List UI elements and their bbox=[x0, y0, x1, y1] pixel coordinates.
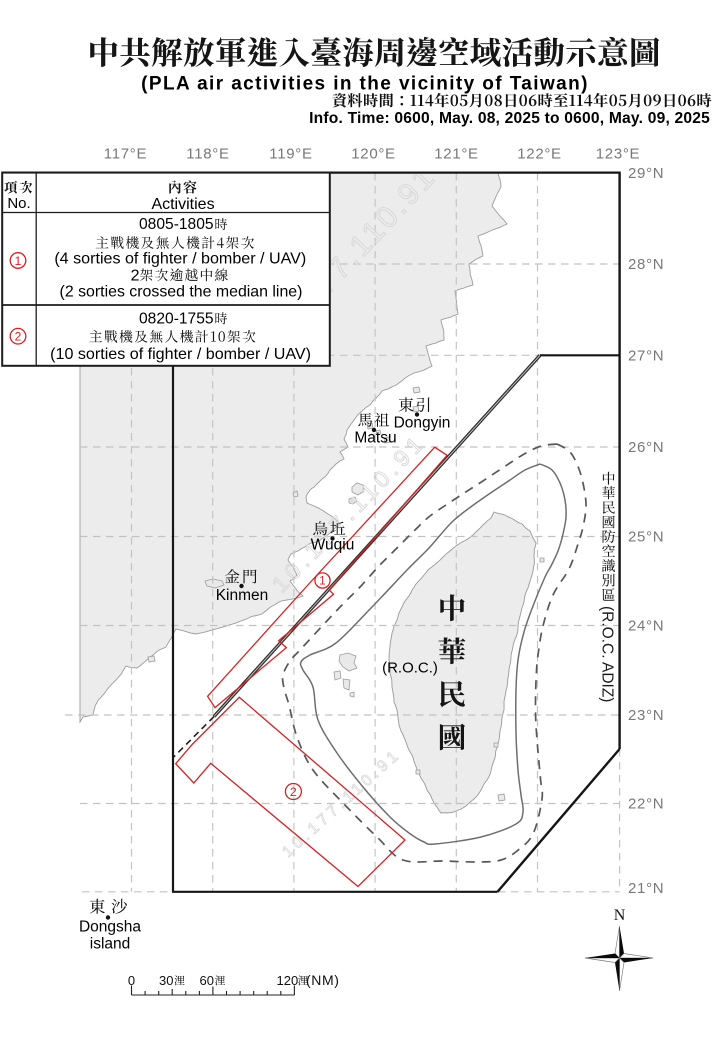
svg-text:22°N: 22°N bbox=[628, 796, 664, 813]
svg-text:(2 sorties crossed the median: (2 sorties crossed the median line) bbox=[60, 283, 303, 300]
svg-text:1: 1 bbox=[319, 576, 325, 588]
svg-text:Dongsha: Dongsha bbox=[79, 919, 141, 936]
svg-text:Dongyin: Dongyin bbox=[394, 415, 451, 432]
svg-text:25°N: 25°N bbox=[628, 529, 664, 546]
svg-text:(NM): (NM) bbox=[306, 972, 340, 988]
svg-text:120: 120 bbox=[277, 973, 299, 988]
svg-text:24°N: 24°N bbox=[628, 618, 664, 635]
svg-text:(R.O.C.): (R.O.C.) bbox=[382, 660, 438, 677]
svg-text:21°N: 21°N bbox=[628, 880, 664, 897]
svg-text:117°E: 117°E bbox=[104, 146, 147, 163]
svg-text:30: 30 bbox=[159, 973, 173, 988]
svg-text:26°N: 26°N bbox=[628, 439, 664, 456]
svg-text:2: 2 bbox=[290, 785, 297, 799]
svg-text:120°E: 120°E bbox=[351, 146, 396, 163]
svg-text:N: N bbox=[614, 907, 626, 924]
svg-text:Matsu: Matsu bbox=[354, 430, 396, 447]
svg-text:0820-1755: 0820-1755 bbox=[139, 310, 214, 327]
svg-text:(4 sorties of fighter / bomber: (4 sorties of fighter / bomber / UAV) bbox=[54, 249, 306, 267]
svg-text:27°N: 27°N bbox=[628, 347, 664, 364]
svg-text:118°E: 118°E bbox=[186, 146, 229, 163]
svg-text:1: 1 bbox=[15, 254, 22, 268]
svg-text:2: 2 bbox=[15, 330, 22, 344]
svg-text:(PLA air activities in the vic: (PLA air activities in the vicinity of T… bbox=[141, 74, 589, 95]
svg-text:121°E: 121°E bbox=[434, 146, 479, 163]
svg-text:0805-1805: 0805-1805 bbox=[139, 216, 214, 233]
svg-text:Info. Time: 0600, May. 08, 202: Info. Time: 0600, May. 08, 2025 to 0600,… bbox=[309, 110, 710, 127]
svg-text:0: 0 bbox=[128, 973, 135, 988]
svg-text:Activities: Activities bbox=[151, 196, 214, 213]
svg-text:29°N: 29°N bbox=[628, 165, 664, 182]
svg-text:123°E: 123°E bbox=[596, 146, 641, 163]
svg-text:island: island bbox=[90, 936, 131, 953]
svg-text:119°E: 119°E bbox=[269, 146, 312, 163]
svg-text:23°N: 23°N bbox=[628, 707, 664, 724]
svg-text:122°E: 122°E bbox=[517, 146, 562, 163]
svg-text:28°N: 28°N bbox=[628, 256, 664, 273]
svg-text:(10 sorties of fighter / bombe: (10 sorties of fighter / bomber / UAV) bbox=[50, 345, 311, 363]
svg-text:2: 2 bbox=[131, 267, 140, 284]
svg-text:Kinmen: Kinmen bbox=[216, 587, 269, 604]
svg-text:No.: No. bbox=[7, 195, 30, 212]
svg-text:(R.O.C. ADIZ): (R.O.C. ADIZ) bbox=[599, 606, 616, 702]
svg-text:60: 60 bbox=[200, 973, 214, 988]
